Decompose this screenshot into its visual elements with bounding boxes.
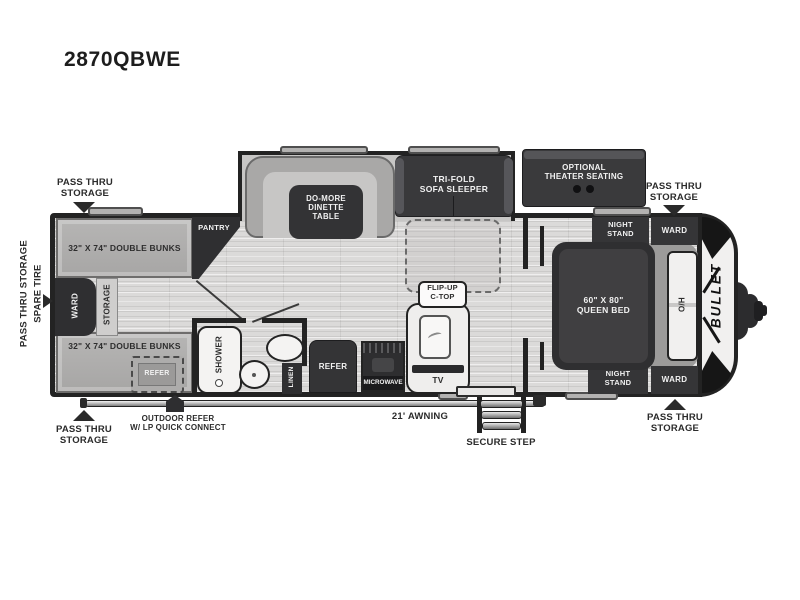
arrow-up-icon xyxy=(664,399,686,410)
arrow-up-icon xyxy=(73,410,95,421)
model-number: 2870QBWE xyxy=(64,48,181,72)
linen-label: LINEN xyxy=(288,352,296,402)
outdoor-refer-marker xyxy=(166,395,184,412)
flip-up-ctop-label: FLIP-UP C-TOP xyxy=(418,284,467,301)
refrigerator-label: REFER xyxy=(309,362,357,371)
arrow-down-icon xyxy=(663,205,685,216)
bedroom-wall xyxy=(523,338,528,393)
tv-label: TV xyxy=(412,376,464,386)
callout-side-spare-tire: SPARE TIRE xyxy=(32,229,43,359)
arrow-right-icon xyxy=(43,294,53,308)
bathroom-wall xyxy=(302,318,307,366)
shower-drain xyxy=(215,379,223,387)
secure-step-tread xyxy=(480,400,523,408)
awning-endcap xyxy=(80,398,87,408)
floorplan-canvas: 2870QBWE 32" X 74" DOUBLE BUNKS 32" X 74… xyxy=(0,0,800,600)
awning-label: 21' AWNING xyxy=(370,411,470,422)
awning-endcap xyxy=(533,395,546,406)
tv-slot xyxy=(412,365,464,373)
callout-pass-thru-top-left: PASS THRU STORAGE xyxy=(35,177,135,199)
ward-bunkroom-label: WARD xyxy=(70,276,79,336)
night-stand-top-label: NIGHT STAND xyxy=(592,221,649,239)
entry-door xyxy=(456,386,516,397)
callout-side-storage: PASS THRU STORAGE xyxy=(18,229,29,359)
microwave-label: MICROWAVE xyxy=(361,379,405,386)
bathroom-wall xyxy=(262,318,307,323)
double-bunk-bottom-label: 32" X 74" DOUBLE BUNKS xyxy=(58,342,191,352)
range-grill xyxy=(363,343,403,353)
refer-bunkroom-label: REFER xyxy=(138,370,176,378)
sofa-seam xyxy=(453,196,454,216)
outdoor-refer-label: OUTDOOR REFER W/ LP QUICK CONNECT xyxy=(118,414,238,433)
overhead-cabinet-label: O/H xyxy=(677,285,686,325)
arrow-down-icon xyxy=(73,202,95,213)
theater-cupholder xyxy=(573,185,581,193)
dinette-table-label: DO-MORE DINETTE TABLE xyxy=(289,194,363,222)
wall-trim xyxy=(280,146,368,154)
theater-seating-top xyxy=(524,151,644,159)
callout-pass-thru-top-right: PASS THRU STORAGE xyxy=(624,181,724,203)
night-stand-bottom-label: NIGHT STAND xyxy=(588,370,648,388)
pantry-label: PANTRY xyxy=(193,224,235,233)
theater-cupholder xyxy=(586,185,594,193)
callout-pass-thru-bottom-right: PASS THRU STORAGE xyxy=(625,412,725,434)
wall-trim xyxy=(408,146,500,154)
bedroom-wall xyxy=(540,342,544,370)
ward-bed-top-label: WARD xyxy=(651,226,698,235)
wall-trim xyxy=(88,207,143,216)
secure-step-tread xyxy=(482,422,521,430)
sofa-label: TRI-FOLD SOFA SLEEPER xyxy=(402,174,506,194)
queen-bed-label: 60" X 80" QUEEN BED xyxy=(552,295,655,315)
toilet xyxy=(266,334,304,362)
bullet-logo: BULLET xyxy=(709,246,724,346)
wall-trim xyxy=(593,207,651,216)
bathroom-sink-drain xyxy=(252,373,256,377)
front-cap-graphic xyxy=(702,351,736,395)
bedroom-wall xyxy=(540,226,544,266)
ward-bed-bottom-label: WARD xyxy=(651,375,698,384)
hitch-tip xyxy=(761,305,767,316)
awning-bar xyxy=(85,400,545,407)
storage-bunkroom-label: STORAGE xyxy=(102,270,111,340)
secure-step-label: SECURE STEP xyxy=(451,437,551,448)
secure-step-tread xyxy=(481,411,522,419)
bedroom-wall xyxy=(523,217,528,269)
range-burner xyxy=(372,358,394,372)
double-bunk-top-label: 32" X 74" DOUBLE BUNKS xyxy=(58,244,191,254)
theater-seating-label: OPTIONAL THEATER SEATING xyxy=(524,163,644,182)
